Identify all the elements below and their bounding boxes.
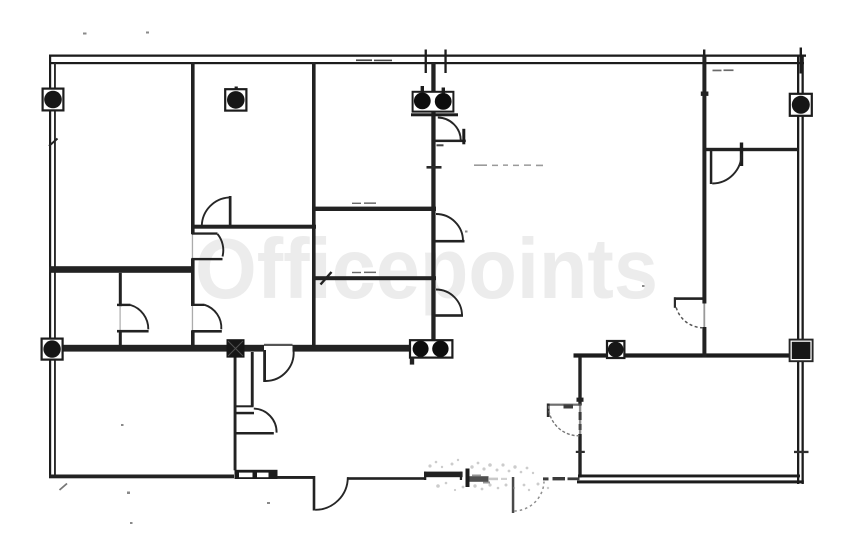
svg-text:Officepoints: Officepoints <box>195 222 658 317</box>
